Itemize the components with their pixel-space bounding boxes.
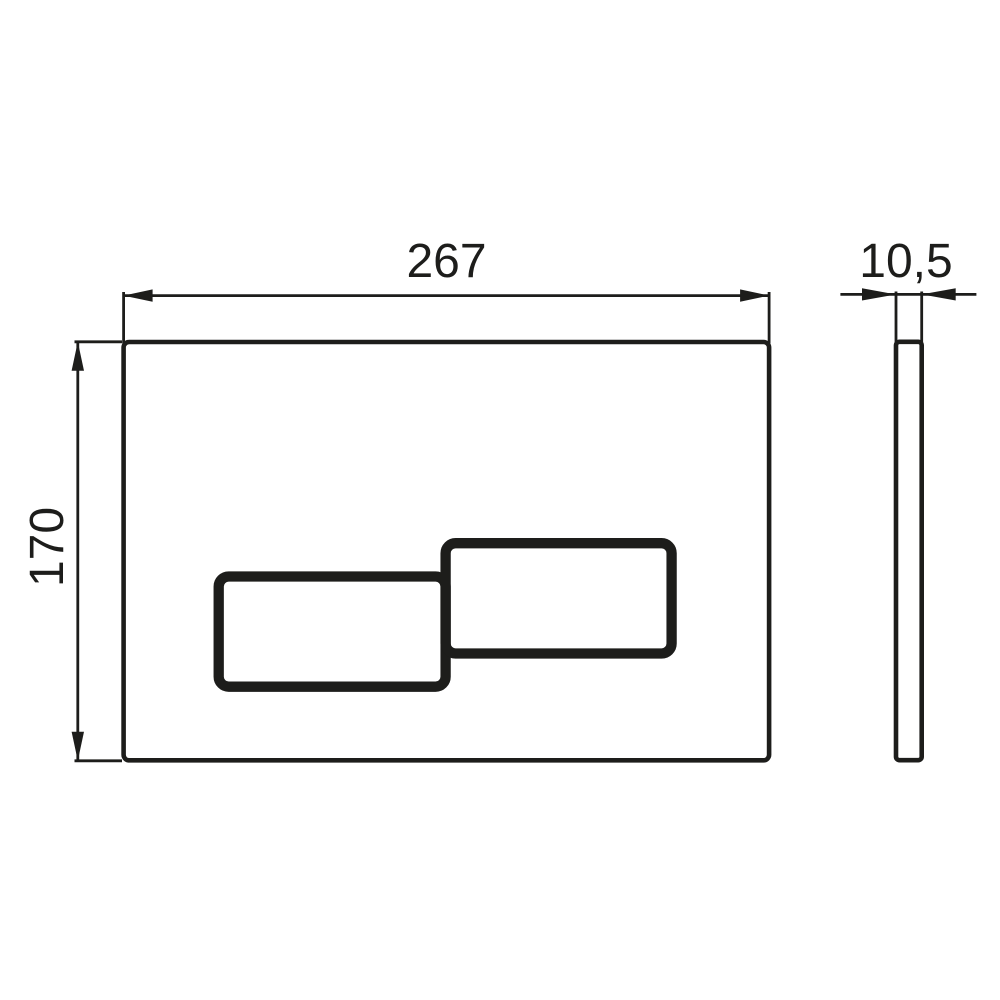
svg-text:267: 267 <box>406 235 486 288</box>
svg-text:10,5: 10,5 <box>859 235 952 288</box>
svg-text:170: 170 <box>21 507 74 587</box>
